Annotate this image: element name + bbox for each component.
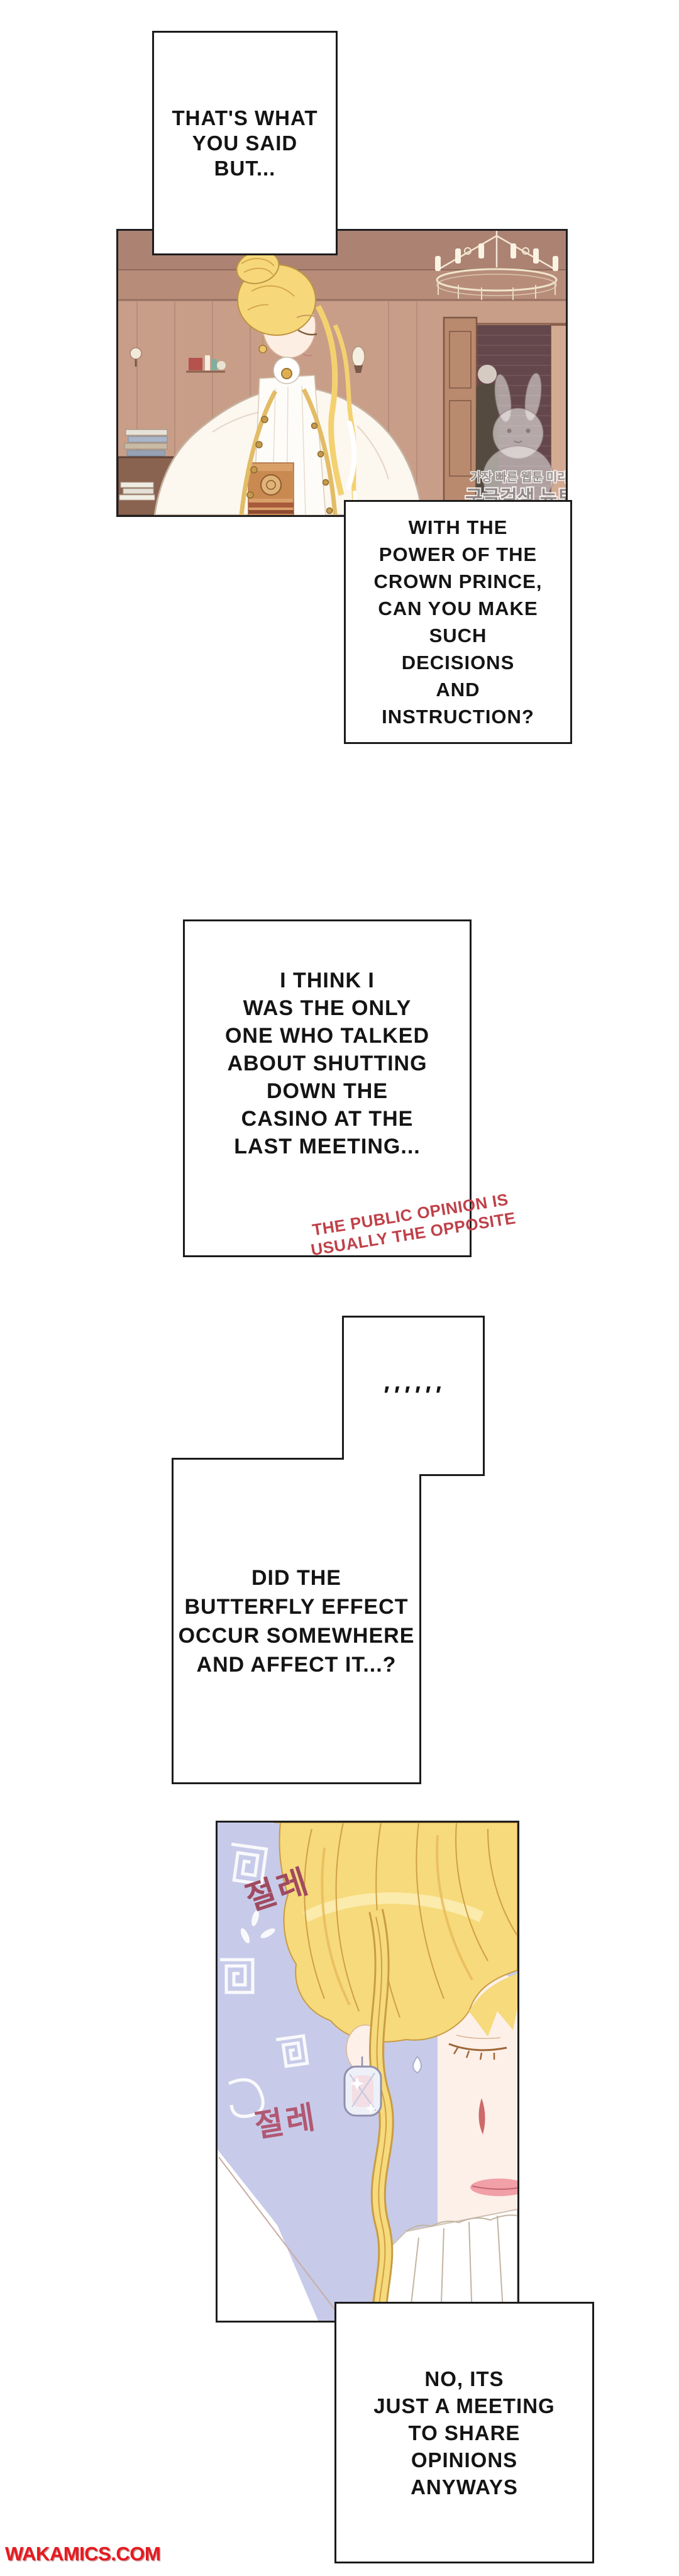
speech-text-6: NO, ITSJUST A MEETINGTO SHAREOPINIONSANY… xyxy=(373,2365,555,2501)
speech-bubble-2: WITH THEPOWER OF THECROWN PRINCE,CAN YOU… xyxy=(344,500,572,744)
webtoon-page: 가장 빠른 웹툰 미리보 구글검색 뉴토끼 xyxy=(0,0,679,2576)
speech-bubble-6: NO, ITSJUST A MEETINGTO SHAREOPINIONSANY… xyxy=(334,2302,594,2563)
site-watermark: WAKAMICS.COM xyxy=(5,2543,160,2565)
speech-text-3: I THINK IWAS THE ONLYONE WHO TALKEDABOUT… xyxy=(225,967,429,1160)
closeup-hair xyxy=(274,1823,517,2042)
gold-earring xyxy=(259,345,267,353)
watermark-text-line1: 가장 빠른 웹툰 미리보 xyxy=(470,470,566,484)
speech-text-2: WITH THEPOWER OF THECROWN PRINCE,CAN YOU… xyxy=(374,514,543,730)
speech-bubble-1: THAT'S WHATYOU SAIDBUT... xyxy=(152,31,338,255)
palace-room-illustration: 가장 빠른 웹툰 미리보 구글검색 뉴토끼 xyxy=(118,231,566,515)
closeup-illustration: 절레 절레 xyxy=(218,1823,517,2321)
brooch xyxy=(282,369,292,379)
door-leaf xyxy=(444,318,477,515)
panel-closeup-face: 절레 절레 xyxy=(216,1821,519,2323)
speech-text-4: '''''' xyxy=(342,1316,485,1476)
speech-text-5: DID THEBUTTERFLY EFFECTOCCUR SOMEWHEREAN… xyxy=(172,1458,421,1784)
panel-palace-room: 가장 빠른 웹툰 미리보 구글검색 뉴토끼 xyxy=(116,229,568,517)
speech-text-1: THAT'S WHATYOU SAIDBUT... xyxy=(172,106,317,181)
